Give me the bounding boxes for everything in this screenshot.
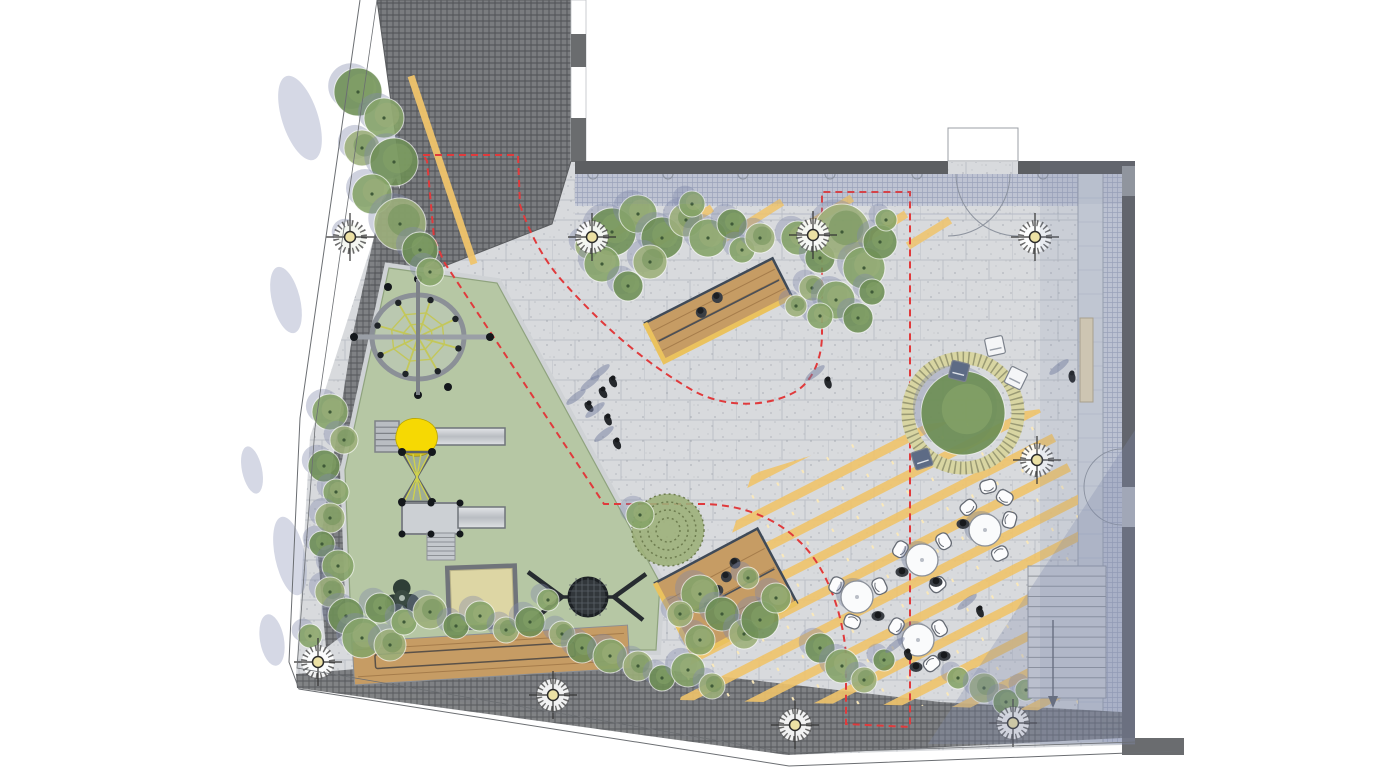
site-plan-drawing	[0, 0, 1400, 775]
cast-shadow	[256, 612, 289, 667]
top-wall	[575, 161, 948, 174]
site-plan	[0, 0, 1400, 775]
cast-shadow	[237, 444, 267, 495]
slide	[431, 428, 505, 445]
movable-seat	[984, 335, 1005, 356]
wall-pilaster	[571, 34, 586, 67]
cast-shadow	[264, 264, 308, 337]
seated-person	[910, 662, 923, 672]
seated-person	[957, 519, 970, 529]
seated-person	[896, 567, 909, 577]
cast-shadow	[269, 71, 330, 166]
street-lamp	[326, 213, 374, 261]
wall-pilaster	[571, 118, 586, 162]
seated-person	[930, 577, 943, 587]
seated-person	[872, 611, 885, 621]
door-opening	[948, 128, 1018, 161]
movable-seat	[948, 360, 970, 382]
slide	[458, 507, 505, 528]
seated-person	[938, 651, 951, 661]
